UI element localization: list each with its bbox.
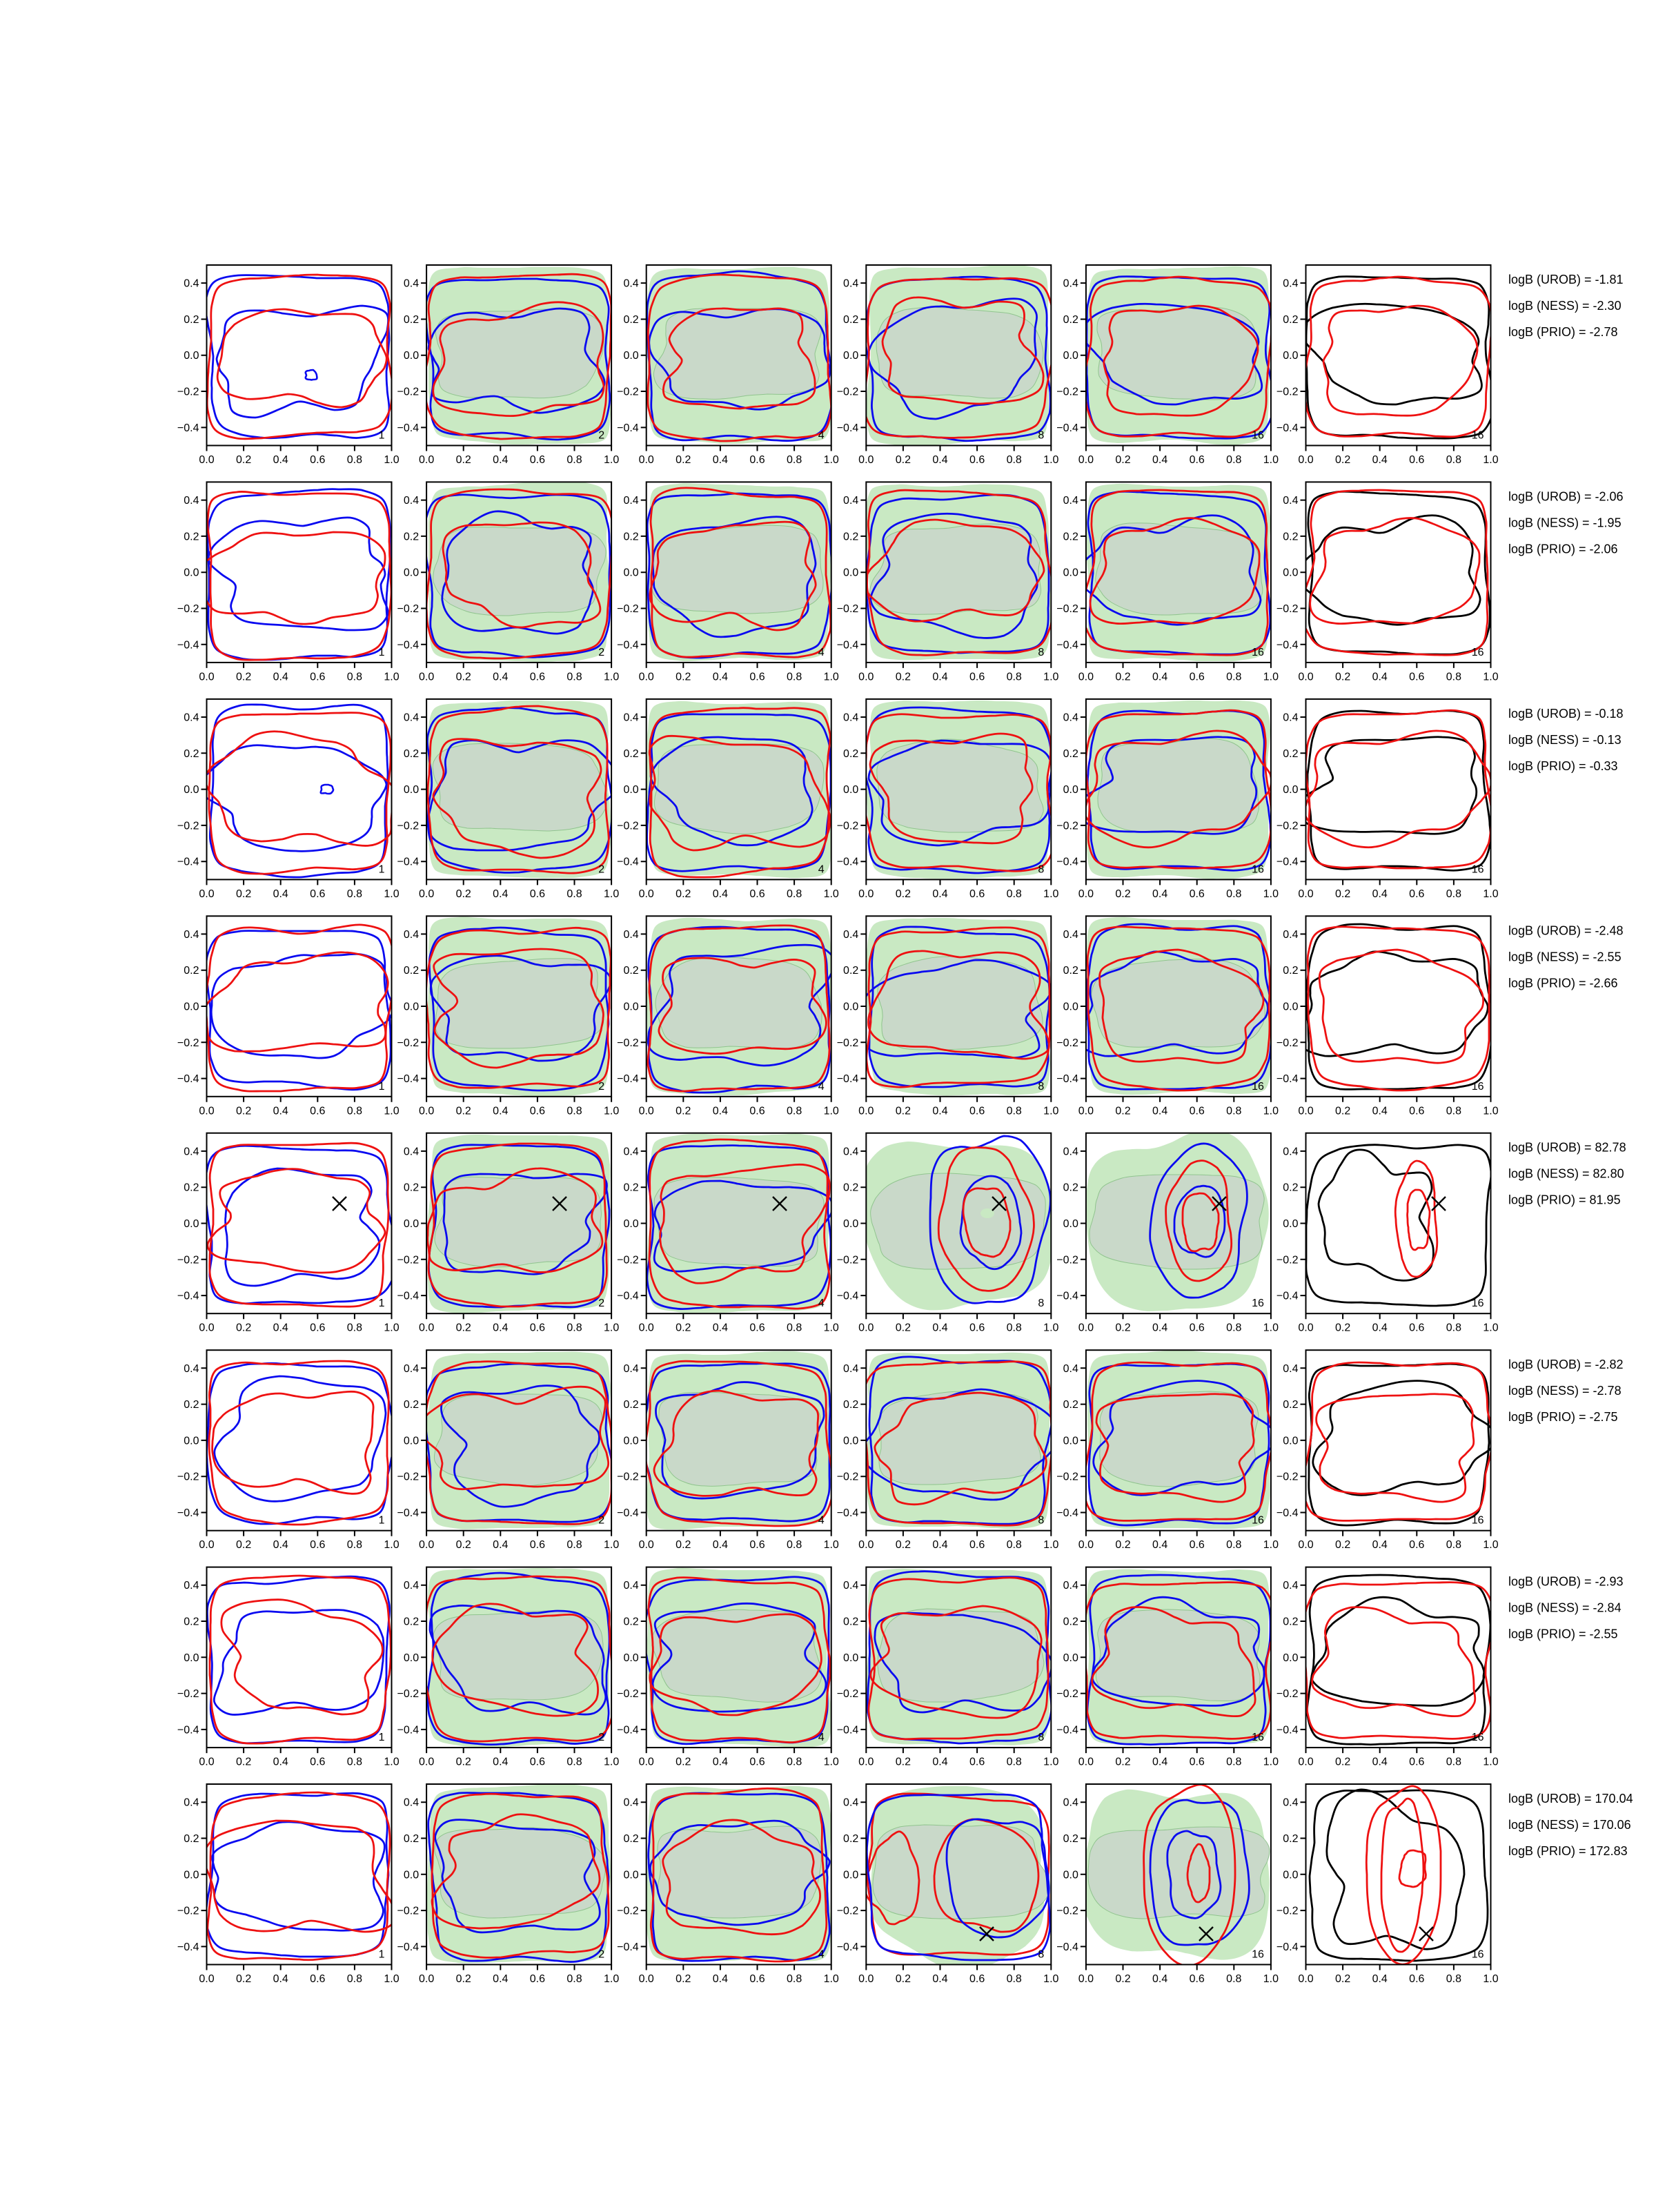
svg-text:0.2: 0.2 xyxy=(623,314,638,326)
svg-text:0.0: 0.0 xyxy=(1078,671,1094,683)
svg-text:8: 8 xyxy=(1038,1515,1044,1527)
svg-text:0.0: 0.0 xyxy=(858,1756,874,1768)
svg-text:0.2: 0.2 xyxy=(184,1399,199,1411)
svg-text:1.0: 1.0 xyxy=(824,1539,839,1551)
svg-text:−0.2: −0.2 xyxy=(177,1906,199,1917)
svg-text:0.0: 0.0 xyxy=(1283,567,1298,579)
svg-text:0.6: 0.6 xyxy=(969,1756,985,1768)
svg-text:0.6: 0.6 xyxy=(310,671,325,683)
svg-text:0.4: 0.4 xyxy=(404,712,419,724)
svg-text:16: 16 xyxy=(1252,1515,1264,1527)
svg-text:0.0: 0.0 xyxy=(1063,567,1078,579)
svg-text:0.4: 0.4 xyxy=(493,1756,508,1768)
svg-text:1.0: 1.0 xyxy=(384,1322,399,1334)
svg-text:0.2: 0.2 xyxy=(1115,1105,1130,1117)
svg-text:0.8: 0.8 xyxy=(1226,671,1241,683)
svg-text:0.8: 0.8 xyxy=(1226,1756,1241,1768)
svg-text:0.8: 0.8 xyxy=(347,1539,362,1551)
svg-text:16: 16 xyxy=(1252,1298,1264,1309)
svg-text:0.2: 0.2 xyxy=(1063,531,1078,542)
svg-text:0.8: 0.8 xyxy=(1007,888,1022,900)
svg-text:0.8: 0.8 xyxy=(1446,888,1461,900)
svg-text:0.8: 0.8 xyxy=(1007,1756,1022,1768)
svg-text:0.0: 0.0 xyxy=(843,1218,858,1230)
svg-text:−0.2: −0.2 xyxy=(177,820,199,832)
svg-text:−0.2: −0.2 xyxy=(617,1471,639,1483)
svg-text:0.0: 0.0 xyxy=(1283,1652,1298,1664)
svg-text:−0.2: −0.2 xyxy=(1056,1688,1078,1700)
svg-text:2: 2 xyxy=(598,1949,604,1961)
svg-text:0.4: 0.4 xyxy=(404,1146,419,1157)
svg-text:0.0: 0.0 xyxy=(858,888,874,900)
svg-text:0.4: 0.4 xyxy=(843,495,858,507)
svg-text:−0.2: −0.2 xyxy=(1056,820,1078,832)
svg-text:0.4: 0.4 xyxy=(623,1797,638,1809)
svg-text:−0.2: −0.2 xyxy=(1276,386,1299,398)
svg-text:1.0: 1.0 xyxy=(1263,1973,1279,1985)
svg-text:0.4: 0.4 xyxy=(404,278,419,290)
svg-text:0.2: 0.2 xyxy=(1335,888,1350,900)
svg-text:0.8: 0.8 xyxy=(1007,454,1022,466)
svg-text:−0.4: −0.4 xyxy=(1276,1724,1299,1736)
svg-text:0.0: 0.0 xyxy=(419,1973,434,1985)
svg-text:1.0: 1.0 xyxy=(604,1539,619,1551)
svg-text:0.0: 0.0 xyxy=(1078,1539,1094,1551)
svg-text:−0.4: −0.4 xyxy=(1276,857,1299,868)
svg-text:0.2: 0.2 xyxy=(896,1539,911,1551)
svg-text:0.4: 0.4 xyxy=(1372,1539,1388,1551)
svg-text:0.6: 0.6 xyxy=(530,1322,545,1334)
svg-text:0.8: 0.8 xyxy=(1226,1105,1241,1117)
svg-text:0.0: 0.0 xyxy=(623,1001,638,1013)
svg-text:0.6: 0.6 xyxy=(310,1973,325,1985)
svg-text:0.2: 0.2 xyxy=(623,748,638,760)
svg-text:−0.4: −0.4 xyxy=(617,857,639,868)
svg-text:0.0: 0.0 xyxy=(199,1322,214,1334)
svg-text:0.6: 0.6 xyxy=(1190,671,1205,683)
svg-text:1.0: 1.0 xyxy=(1263,1756,1279,1768)
svg-text:−0.2: −0.2 xyxy=(837,1906,859,1917)
svg-text:0.0: 0.0 xyxy=(1283,1869,1298,1881)
svg-text:0.4: 0.4 xyxy=(932,888,947,900)
svg-text:1.0: 1.0 xyxy=(384,1105,399,1117)
svg-text:0.6: 0.6 xyxy=(530,1539,545,1551)
svg-text:1.0: 1.0 xyxy=(604,1322,619,1334)
svg-text:0.4: 0.4 xyxy=(1152,1105,1167,1117)
svg-text:4: 4 xyxy=(818,430,825,442)
svg-text:0.4: 0.4 xyxy=(932,1105,947,1117)
svg-text:1.0: 1.0 xyxy=(604,888,619,900)
svg-text:−0.4: −0.4 xyxy=(397,1291,420,1302)
svg-text:0.4: 0.4 xyxy=(1372,454,1388,466)
svg-text:0.4: 0.4 xyxy=(1372,1322,1388,1334)
svg-text:0.0: 0.0 xyxy=(1063,350,1078,362)
svg-text:0.2: 0.2 xyxy=(676,671,691,683)
svg-text:−0.2: −0.2 xyxy=(1056,1254,1078,1266)
svg-text:−0.2: −0.2 xyxy=(397,820,420,832)
svg-text:logB (PRIO) = -2.66: logB (PRIO) = -2.66 xyxy=(1508,976,1618,990)
svg-text:logB (NESS) = -2.78: logB (NESS) = -2.78 xyxy=(1508,1384,1621,1398)
svg-text:0.4: 0.4 xyxy=(493,671,508,683)
svg-text:0.4: 0.4 xyxy=(1063,712,1078,724)
svg-text:16: 16 xyxy=(1472,1081,1484,1093)
svg-text:1.0: 1.0 xyxy=(1483,1539,1498,1551)
svg-text:0.4: 0.4 xyxy=(1152,888,1167,900)
svg-text:0.0: 0.0 xyxy=(184,1435,199,1447)
svg-text:0.2: 0.2 xyxy=(404,1399,419,1411)
svg-text:0.0: 0.0 xyxy=(1298,1539,1313,1551)
svg-text:0.0: 0.0 xyxy=(199,888,214,900)
svg-text:0.0: 0.0 xyxy=(639,1756,654,1768)
svg-text:0.6: 0.6 xyxy=(530,888,545,900)
svg-text:−0.2: −0.2 xyxy=(177,1688,199,1700)
svg-text:0.2: 0.2 xyxy=(1115,454,1130,466)
svg-text:0.0: 0.0 xyxy=(843,1435,858,1447)
svg-text:0.4: 0.4 xyxy=(932,1322,947,1334)
svg-text:−0.4: −0.4 xyxy=(837,1073,859,1085)
svg-text:−0.2: −0.2 xyxy=(837,603,859,615)
svg-text:0.0: 0.0 xyxy=(1063,1435,1078,1447)
svg-text:0.4: 0.4 xyxy=(932,454,947,466)
svg-text:0.8: 0.8 xyxy=(1007,1322,1022,1334)
svg-text:−0.4: −0.4 xyxy=(837,1941,859,1953)
svg-text:−0.4: −0.4 xyxy=(617,1291,639,1302)
svg-text:1.0: 1.0 xyxy=(824,888,839,900)
svg-text:16: 16 xyxy=(1252,647,1264,658)
svg-text:0.0: 0.0 xyxy=(639,888,654,900)
svg-text:0.2: 0.2 xyxy=(1283,1616,1298,1628)
svg-text:−0.2: −0.2 xyxy=(397,1471,420,1483)
svg-text:0.2: 0.2 xyxy=(896,1756,911,1768)
svg-text:0.2: 0.2 xyxy=(623,531,638,542)
svg-text:logB (NESS) = -2.55: logB (NESS) = -2.55 xyxy=(1508,950,1621,963)
svg-text:0.0: 0.0 xyxy=(623,567,638,579)
svg-text:logB (PRIO) = -2.55: logB (PRIO) = -2.55 xyxy=(1508,1627,1618,1641)
svg-text:−0.4: −0.4 xyxy=(1056,857,1078,868)
svg-text:0.0: 0.0 xyxy=(404,1869,419,1881)
svg-text:0.6: 0.6 xyxy=(1190,888,1205,900)
svg-text:1.0: 1.0 xyxy=(604,1756,619,1768)
svg-text:16: 16 xyxy=(1252,1949,1264,1961)
svg-text:0.4: 0.4 xyxy=(184,495,199,507)
svg-text:0.0: 0.0 xyxy=(623,1652,638,1664)
svg-text:0.2: 0.2 xyxy=(896,454,911,466)
svg-text:1.0: 1.0 xyxy=(824,671,839,683)
svg-text:0.0: 0.0 xyxy=(184,1001,199,1013)
svg-text:0.2: 0.2 xyxy=(1283,1833,1298,1845)
svg-text:0.4: 0.4 xyxy=(493,888,508,900)
svg-text:8: 8 xyxy=(1038,1949,1044,1961)
svg-text:−0.2: −0.2 xyxy=(617,603,639,615)
svg-text:16: 16 xyxy=(1252,1081,1264,1093)
svg-text:0.0: 0.0 xyxy=(419,454,434,466)
svg-text:0.0: 0.0 xyxy=(1063,1001,1078,1013)
svg-text:0.0: 0.0 xyxy=(419,1756,434,1768)
svg-text:0.2: 0.2 xyxy=(623,1399,638,1411)
svg-text:−0.4: −0.4 xyxy=(397,422,420,434)
svg-text:16: 16 xyxy=(1472,430,1484,442)
svg-text:0.2: 0.2 xyxy=(184,1616,199,1628)
svg-text:0.2: 0.2 xyxy=(1115,888,1130,900)
svg-text:0.6: 0.6 xyxy=(969,454,985,466)
svg-text:16: 16 xyxy=(1252,430,1264,442)
svg-text:logB (UROB) = -1.81: logB (UROB) = -1.81 xyxy=(1508,273,1624,286)
svg-text:0.0: 0.0 xyxy=(404,1218,419,1230)
svg-text:0.2: 0.2 xyxy=(236,1756,251,1768)
svg-text:2: 2 xyxy=(598,647,604,658)
svg-text:−0.2: −0.2 xyxy=(837,1254,859,1266)
svg-text:1.0: 1.0 xyxy=(1263,671,1279,683)
svg-text:0.8: 0.8 xyxy=(1226,454,1241,466)
svg-text:1.0: 1.0 xyxy=(1483,671,1498,683)
svg-text:−0.2: −0.2 xyxy=(397,1037,420,1049)
svg-text:0.4: 0.4 xyxy=(713,1322,728,1334)
svg-text:logB (NESS) = -1.95: logB (NESS) = -1.95 xyxy=(1508,516,1621,529)
svg-text:0.2: 0.2 xyxy=(236,1973,251,1985)
svg-text:−0.4: −0.4 xyxy=(177,1507,199,1519)
svg-text:0.4: 0.4 xyxy=(273,454,288,466)
svg-text:−0.4: −0.4 xyxy=(397,1073,420,1085)
svg-text:0.0: 0.0 xyxy=(184,1869,199,1881)
svg-text:−0.2: −0.2 xyxy=(1276,1254,1299,1266)
svg-text:−0.4: −0.4 xyxy=(1276,422,1299,434)
svg-text:4: 4 xyxy=(818,1081,825,1093)
svg-text:0.6: 0.6 xyxy=(749,888,765,900)
svg-text:0.4: 0.4 xyxy=(493,1539,508,1551)
svg-text:0.2: 0.2 xyxy=(676,1322,691,1334)
svg-text:0.0: 0.0 xyxy=(184,350,199,362)
svg-text:1.0: 1.0 xyxy=(604,1105,619,1117)
svg-text:0.0: 0.0 xyxy=(404,1652,419,1664)
svg-text:−0.4: −0.4 xyxy=(1276,1507,1299,1519)
svg-text:0.8: 0.8 xyxy=(1226,1322,1241,1334)
svg-text:0.0: 0.0 xyxy=(858,671,874,683)
svg-text:0.6: 0.6 xyxy=(1190,1973,1205,1985)
svg-text:−0.2: −0.2 xyxy=(837,386,859,398)
svg-text:0.8: 0.8 xyxy=(566,1322,582,1334)
svg-text:−0.4: −0.4 xyxy=(1056,1291,1078,1302)
svg-text:0.0: 0.0 xyxy=(1078,1322,1094,1334)
svg-text:0.8: 0.8 xyxy=(1007,1539,1022,1551)
svg-text:0.6: 0.6 xyxy=(1409,1539,1424,1551)
svg-text:−0.2: −0.2 xyxy=(837,820,859,832)
svg-text:0.4: 0.4 xyxy=(404,495,419,507)
svg-text:0.0: 0.0 xyxy=(1078,454,1094,466)
svg-text:0.0: 0.0 xyxy=(1063,1869,1078,1881)
svg-text:0.4: 0.4 xyxy=(184,1146,199,1157)
svg-text:0.6: 0.6 xyxy=(530,454,545,466)
svg-text:0.8: 0.8 xyxy=(1226,1539,1241,1551)
svg-text:0.4: 0.4 xyxy=(1063,1797,1078,1809)
svg-text:−0.2: −0.2 xyxy=(1276,603,1299,615)
svg-text:0.4: 0.4 xyxy=(1152,671,1167,683)
svg-text:0.8: 0.8 xyxy=(566,671,582,683)
svg-text:1.0: 1.0 xyxy=(1043,1973,1058,1985)
svg-text:4: 4 xyxy=(818,1298,825,1309)
svg-text:0.2: 0.2 xyxy=(456,1539,471,1551)
svg-text:−0.4: −0.4 xyxy=(1276,1291,1299,1302)
svg-text:0.4: 0.4 xyxy=(1283,712,1298,724)
svg-text:0.4: 0.4 xyxy=(843,278,858,290)
svg-text:logB (PRIO) = 81.95: logB (PRIO) = 81.95 xyxy=(1508,1193,1621,1207)
svg-text:0.2: 0.2 xyxy=(236,1105,251,1117)
svg-text:0.2: 0.2 xyxy=(1063,748,1078,760)
svg-text:0.6: 0.6 xyxy=(749,1322,765,1334)
svg-text:0.6: 0.6 xyxy=(1409,671,1424,683)
svg-text:0.2: 0.2 xyxy=(1063,965,1078,977)
svg-text:−0.4: −0.4 xyxy=(617,422,639,434)
svg-text:8: 8 xyxy=(1038,1298,1044,1309)
svg-text:−0.4: −0.4 xyxy=(837,1291,859,1302)
svg-text:0.6: 0.6 xyxy=(1190,1322,1205,1334)
svg-text:0.0: 0.0 xyxy=(843,784,858,796)
svg-text:−0.2: −0.2 xyxy=(397,386,420,398)
svg-text:0.0: 0.0 xyxy=(623,1869,638,1881)
svg-text:0.4: 0.4 xyxy=(273,671,288,683)
svg-text:0.2: 0.2 xyxy=(623,965,638,977)
svg-text:4: 4 xyxy=(818,647,825,658)
svg-text:0.0: 0.0 xyxy=(404,784,419,796)
svg-text:0.8: 0.8 xyxy=(347,671,362,683)
svg-text:0.0: 0.0 xyxy=(1283,1435,1298,1447)
svg-text:0.0: 0.0 xyxy=(1298,1322,1313,1334)
svg-text:0.0: 0.0 xyxy=(858,1973,874,1985)
svg-text:0.4: 0.4 xyxy=(932,671,947,683)
svg-text:0.4: 0.4 xyxy=(932,1973,947,1985)
svg-text:0.0: 0.0 xyxy=(404,1435,419,1447)
svg-text:0.8: 0.8 xyxy=(1446,1539,1461,1551)
svg-text:0.4: 0.4 xyxy=(493,1322,508,1334)
svg-text:−0.4: −0.4 xyxy=(397,1724,420,1736)
svg-text:0.2: 0.2 xyxy=(1283,1182,1298,1194)
svg-text:−0.2: −0.2 xyxy=(397,1688,420,1700)
svg-text:0.2: 0.2 xyxy=(1063,1399,1078,1411)
svg-text:0.0: 0.0 xyxy=(1078,1105,1094,1117)
svg-text:0.2: 0.2 xyxy=(1115,671,1130,683)
svg-text:0.2: 0.2 xyxy=(676,1973,691,1985)
svg-text:0.6: 0.6 xyxy=(969,1322,985,1334)
svg-text:1.0: 1.0 xyxy=(384,1973,399,1985)
svg-text:16: 16 xyxy=(1472,1515,1484,1527)
svg-text:0.0: 0.0 xyxy=(623,350,638,362)
svg-text:0.2: 0.2 xyxy=(623,1833,638,1845)
svg-text:1.0: 1.0 xyxy=(1483,1322,1498,1334)
svg-text:0.2: 0.2 xyxy=(1283,965,1298,977)
svg-text:0.0: 0.0 xyxy=(623,1435,638,1447)
svg-text:0.2: 0.2 xyxy=(676,1105,691,1117)
svg-text:−0.2: −0.2 xyxy=(397,1906,420,1917)
svg-text:0.2: 0.2 xyxy=(404,1182,419,1194)
svg-text:−0.4: −0.4 xyxy=(1276,1941,1299,1953)
svg-text:0.6: 0.6 xyxy=(749,454,765,466)
svg-text:0.0: 0.0 xyxy=(199,1539,214,1551)
svg-text:−0.4: −0.4 xyxy=(837,639,859,651)
svg-text:4: 4 xyxy=(818,1515,825,1527)
svg-text:0.2: 0.2 xyxy=(404,965,419,977)
svg-text:0.4: 0.4 xyxy=(713,1756,728,1768)
svg-text:0.2: 0.2 xyxy=(1063,1182,1078,1194)
svg-text:0.4: 0.4 xyxy=(273,1322,288,1334)
svg-text:0.4: 0.4 xyxy=(1283,1797,1298,1809)
svg-text:0.4: 0.4 xyxy=(1063,278,1078,290)
svg-text:−0.4: −0.4 xyxy=(1056,1724,1078,1736)
svg-text:0.8: 0.8 xyxy=(566,1105,582,1117)
svg-text:−0.2: −0.2 xyxy=(397,1254,420,1266)
svg-text:0.2: 0.2 xyxy=(623,1182,638,1194)
svg-text:0.2: 0.2 xyxy=(676,454,691,466)
svg-text:−0.4: −0.4 xyxy=(177,1291,199,1302)
svg-text:0.4: 0.4 xyxy=(493,454,508,466)
svg-text:1.0: 1.0 xyxy=(824,1756,839,1768)
svg-text:1.0: 1.0 xyxy=(1483,454,1498,466)
svg-text:0.6: 0.6 xyxy=(310,1756,325,1768)
svg-text:16: 16 xyxy=(1472,647,1484,658)
svg-text:−0.4: −0.4 xyxy=(837,1724,859,1736)
svg-text:0.4: 0.4 xyxy=(1372,1973,1388,1985)
svg-text:−0.2: −0.2 xyxy=(177,1037,199,1049)
svg-text:0.8: 0.8 xyxy=(1226,1973,1241,1985)
svg-text:0.4: 0.4 xyxy=(184,1363,199,1375)
svg-text:0.2: 0.2 xyxy=(1335,1322,1350,1334)
svg-text:0.2: 0.2 xyxy=(1335,1539,1350,1551)
svg-text:1.0: 1.0 xyxy=(1483,1105,1498,1117)
svg-text:0.6: 0.6 xyxy=(530,1973,545,1985)
svg-text:0.4: 0.4 xyxy=(1372,888,1388,900)
svg-text:0.0: 0.0 xyxy=(639,454,654,466)
svg-text:0.4: 0.4 xyxy=(1152,454,1167,466)
svg-text:0.6: 0.6 xyxy=(310,1105,325,1117)
svg-text:−0.2: −0.2 xyxy=(617,1254,639,1266)
svg-text:0.0: 0.0 xyxy=(1063,1652,1078,1664)
svg-text:1.0: 1.0 xyxy=(1483,1973,1498,1985)
svg-text:0.4: 0.4 xyxy=(184,1580,199,1592)
svg-text:0.8: 0.8 xyxy=(787,671,802,683)
svg-text:0.2: 0.2 xyxy=(1063,314,1078,326)
svg-text:−0.4: −0.4 xyxy=(1056,1507,1078,1519)
svg-text:0.0: 0.0 xyxy=(404,567,419,579)
svg-text:0.2: 0.2 xyxy=(1063,1833,1078,1845)
svg-text:0.4: 0.4 xyxy=(713,888,728,900)
svg-text:0.0: 0.0 xyxy=(639,1973,654,1985)
svg-text:−0.2: −0.2 xyxy=(837,1037,859,1049)
svg-text:−0.4: −0.4 xyxy=(617,1073,639,1085)
svg-text:0.6: 0.6 xyxy=(1409,1756,1424,1768)
svg-text:1.0: 1.0 xyxy=(1263,1105,1279,1117)
svg-text:0.6: 0.6 xyxy=(530,671,545,683)
svg-text:0.0: 0.0 xyxy=(623,1218,638,1230)
svg-text:logB (UROB) = -0.18: logB (UROB) = -0.18 xyxy=(1508,707,1624,721)
svg-text:−0.4: −0.4 xyxy=(177,857,199,868)
svg-text:0.8: 0.8 xyxy=(566,1539,582,1551)
svg-text:0.2: 0.2 xyxy=(896,1322,911,1334)
svg-text:16: 16 xyxy=(1472,1298,1484,1309)
svg-text:0.2: 0.2 xyxy=(843,1182,858,1194)
svg-text:1: 1 xyxy=(379,647,385,658)
svg-text:−0.2: −0.2 xyxy=(1276,1688,1299,1700)
svg-text:0.4: 0.4 xyxy=(1283,1363,1298,1375)
svg-text:0.2: 0.2 xyxy=(1115,1756,1130,1768)
svg-text:0.4: 0.4 xyxy=(493,1105,508,1117)
svg-text:0.0: 0.0 xyxy=(199,1756,214,1768)
svg-text:0.0: 0.0 xyxy=(404,350,419,362)
svg-text:0.0: 0.0 xyxy=(1063,1218,1078,1230)
svg-text:16: 16 xyxy=(1252,1732,1264,1743)
svg-text:logB (PRIO) = -0.33: logB (PRIO) = -0.33 xyxy=(1508,759,1618,773)
svg-text:−0.4: −0.4 xyxy=(1056,422,1078,434)
svg-text:0.4: 0.4 xyxy=(1283,1146,1298,1157)
svg-text:0.0: 0.0 xyxy=(1298,671,1313,683)
svg-text:0.0: 0.0 xyxy=(404,1001,419,1013)
